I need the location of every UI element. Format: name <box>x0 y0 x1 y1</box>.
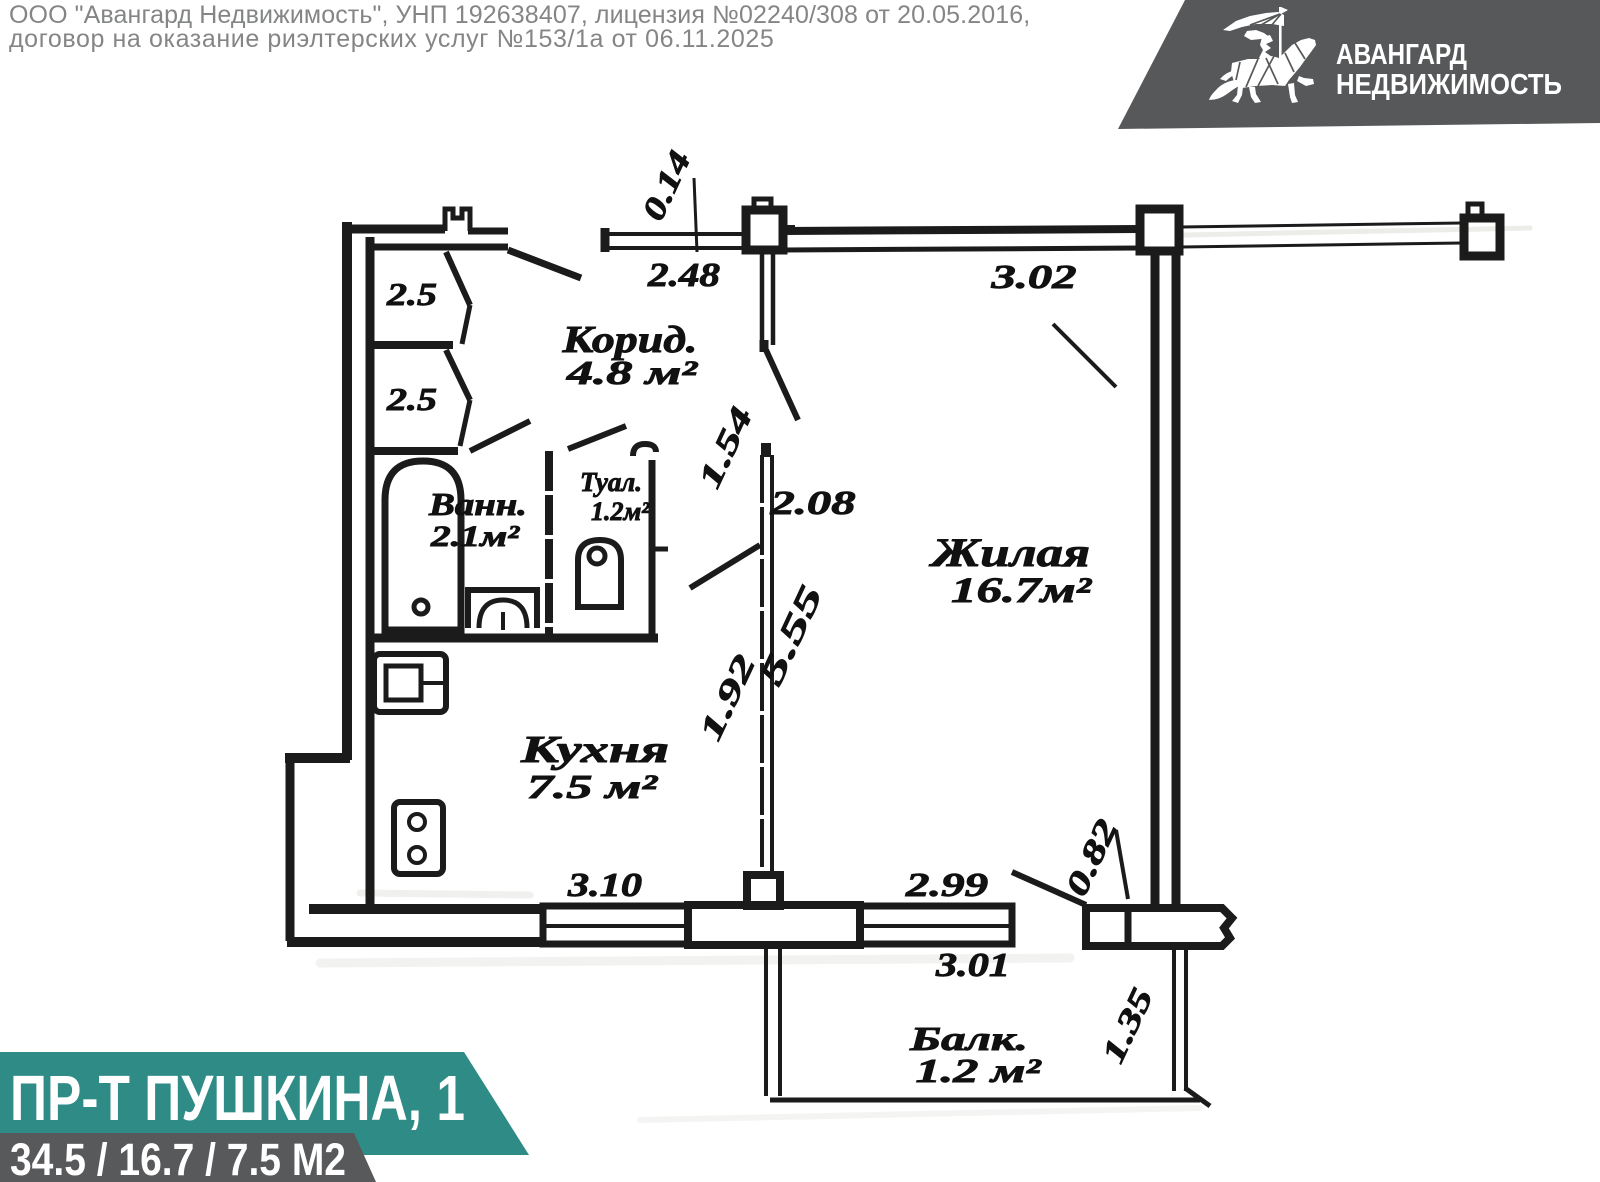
svg-text:0.82: 0.82 <box>1058 813 1124 901</box>
svg-text:2.1м²: 2.1м² <box>430 520 521 553</box>
svg-text:2.08: 2.08 <box>769 485 855 522</box>
svg-text:ПР-Т ПУШКИНА, 1: ПР-Т ПУШКИНА, 1 <box>10 1062 465 1134</box>
svg-text:7.5 м²: 7.5 м² <box>527 769 658 806</box>
svg-text:3.01: 3.01 <box>935 947 1010 984</box>
svg-text:0.14: 0.14 <box>635 145 698 225</box>
svg-text:2.5: 2.5 <box>386 381 437 417</box>
svg-text:16.7м²: 16.7м² <box>951 570 1093 610</box>
svg-text:2.48: 2.48 <box>647 257 720 294</box>
svg-text:3.02: 3.02 <box>990 259 1076 296</box>
svg-text:2.5: 2.5 <box>386 276 437 312</box>
svg-text:Ванн.: Ванн. <box>428 486 527 522</box>
svg-text:34.5 / 16.7 / 7.5 М2: 34.5 / 16.7 / 7.5 М2 <box>10 1134 346 1182</box>
svg-text:АВАНГАРД: АВАНГАРД <box>1336 39 1467 71</box>
svg-text:5.55: 5.55 <box>753 580 831 691</box>
svg-text:3.10: 3.10 <box>567 867 642 904</box>
svg-text:1.2 м²: 1.2 м² <box>916 1053 1042 1090</box>
svg-text:1.2м²: 1.2м² <box>591 497 650 526</box>
svg-text:Жилая: Жилая <box>928 530 1090 575</box>
svg-text:2.99: 2.99 <box>905 867 988 904</box>
svg-text:1.35: 1.35 <box>1094 982 1160 1068</box>
svg-text:1.54: 1.54 <box>691 401 760 493</box>
svg-text:НЕДВИЖИМОСТЬ: НЕДВИЖИМОСТЬ <box>1336 69 1562 101</box>
svg-text:4.8 м²: 4.8 м² <box>565 355 698 392</box>
svg-text:Туал.: Туал. <box>580 467 642 497</box>
svg-text:1.92: 1.92 <box>692 649 763 746</box>
svg-text:Кухня: Кухня <box>520 729 669 771</box>
